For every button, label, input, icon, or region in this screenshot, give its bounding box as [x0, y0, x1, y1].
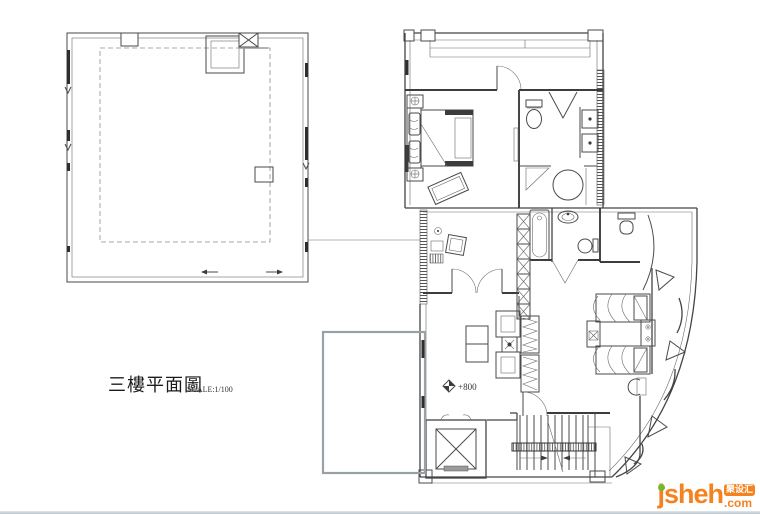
study-room — [423, 228, 519, 294]
corner-shower — [526, 168, 549, 190]
double-basin — [580, 107, 598, 158]
elevator — [419, 415, 486, 483]
family-room: +800 — [443, 296, 547, 420]
balcony-railing — [420, 210, 427, 304]
bedroom-2 — [587, 268, 655, 477]
desk — [428, 172, 469, 204]
elevator-sill — [444, 466, 468, 471]
floor-plan-svg: +800 — [0, 0, 760, 514]
door-swing — [552, 260, 578, 283]
round-shower — [553, 170, 583, 200]
shower-niche — [549, 92, 577, 118]
x-table — [587, 321, 600, 347]
title-block: 三樓平面圖 SCALE:1/100 — [108, 375, 233, 395]
level-text: +800 — [458, 382, 477, 392]
bathroom-1 — [519, 90, 603, 205]
bathtub — [530, 210, 549, 260]
door-arc — [523, 392, 547, 416]
sofa-set — [466, 311, 520, 378]
roof-hatch — [239, 33, 268, 48]
watermark-logo: jsheh 聚设汇 .com — [657, 483, 755, 509]
stairs — [510, 413, 610, 482]
toilet — [526, 100, 542, 129]
tv-panel — [514, 128, 518, 161]
window-marks — [65, 50, 309, 275]
watermark-tld: .com — [724, 497, 752, 509]
wc-nook — [600, 213, 654, 290]
curved-window-wall — [609, 208, 697, 477]
bathroom-2 — [530, 208, 600, 283]
roof-void-dashed — [100, 48, 270, 242]
plan-scale: SCALE:1/100 — [187, 385, 233, 394]
large-roof-room — [65, 33, 309, 282]
floor-plan: +800 — [0, 0, 760, 514]
watermark-badge: 聚设汇 — [724, 484, 755, 496]
handrail — [512, 443, 596, 451]
skylight — [206, 36, 244, 73]
double-bed — [407, 108, 473, 168]
study-table — [446, 235, 467, 256]
wardrobe-hangers — [521, 316, 539, 392]
door-handle — [628, 378, 646, 395]
nightstand — [641, 320, 655, 346]
toilet-2 — [578, 239, 598, 253]
wc-toilet — [618, 213, 635, 234]
french-doors — [452, 269, 502, 293]
master-bedroom — [405, 66, 521, 208]
oval-basin — [558, 211, 578, 223]
watermark-site-name: jsheh — [657, 483, 723, 506]
door-arc — [497, 66, 521, 90]
twin-beds — [593, 294, 650, 374]
level-marker: +800 — [443, 380, 477, 392]
open-terrace — [323, 332, 425, 473]
